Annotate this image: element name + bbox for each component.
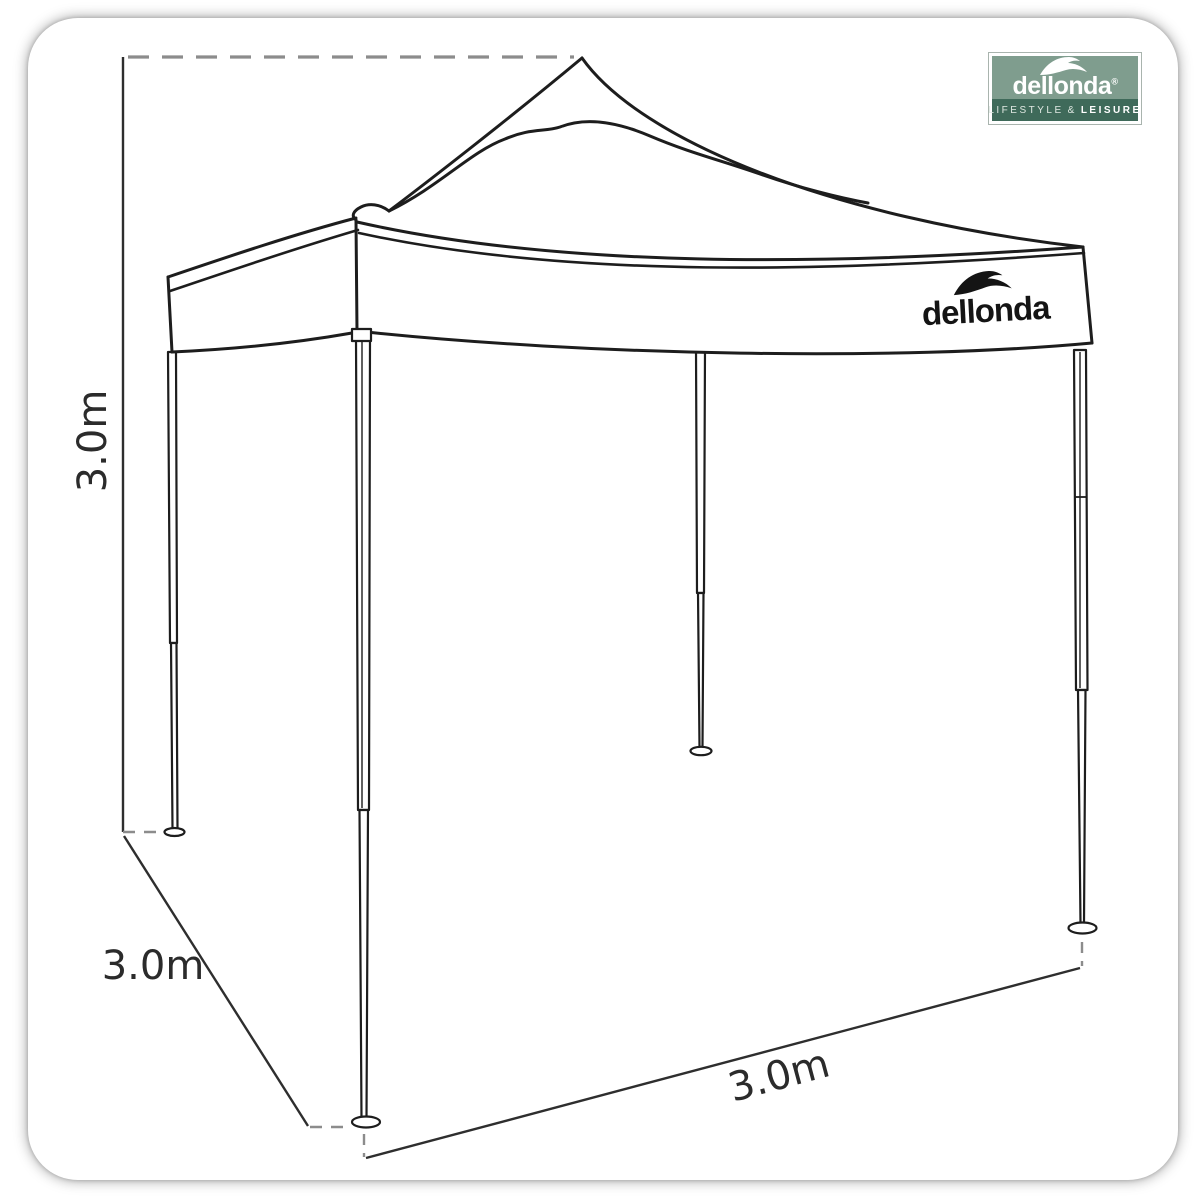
gazebo-legs: [165, 338, 1097, 1128]
brand-badge: dellonda® LIFESTYLE & LEISURE: [988, 52, 1142, 125]
tagline-leisure: LEISURE: [1081, 105, 1142, 116]
gazebo-leg-front-right: [1069, 350, 1097, 934]
product-image: 3.0m 3.0m 3.0m dellonda dellonda® LIFEST…: [0, 0, 1200, 1200]
leg-foot: [1069, 923, 1097, 934]
registered-mark: ®: [1111, 77, 1117, 87]
tagline-ampersand: &: [1068, 105, 1077, 116]
front-left-corner-edge: [356, 220, 357, 331]
tagline-lifestyle: LIFESTYLE: [988, 105, 1063, 116]
brand-badge-panel: dellonda® LIFESTYLE & LEISURE: [992, 56, 1138, 121]
gazebo-leg-rear-right: [691, 348, 712, 755]
leg-foot: [691, 747, 712, 755]
brand-badge-text: dellonda®: [1013, 74, 1118, 99]
corner-bracket: [352, 329, 371, 341]
brand-badge-tagline: LIFESTYLE & LEISURE: [992, 99, 1138, 121]
brand-badge-logo: dellonda®: [992, 56, 1138, 99]
leg-foot: [352, 1117, 380, 1128]
gazebo-leg-front-left: [352, 338, 380, 1128]
depth-dimension-label: 3.0m: [103, 941, 203, 991]
width-dimension-line: [366, 968, 1080, 1158]
gazebo-diagram: [0, 0, 1200, 1200]
leg-foot: [165, 828, 185, 836]
height-dimension-label: 3.0m: [68, 391, 118, 491]
canopy-brand-text: dellonda: [915, 290, 1057, 330]
canopy-brand-logo: dellonda: [914, 266, 1057, 330]
gazebo-leg-rear-left: [165, 352, 185, 836]
